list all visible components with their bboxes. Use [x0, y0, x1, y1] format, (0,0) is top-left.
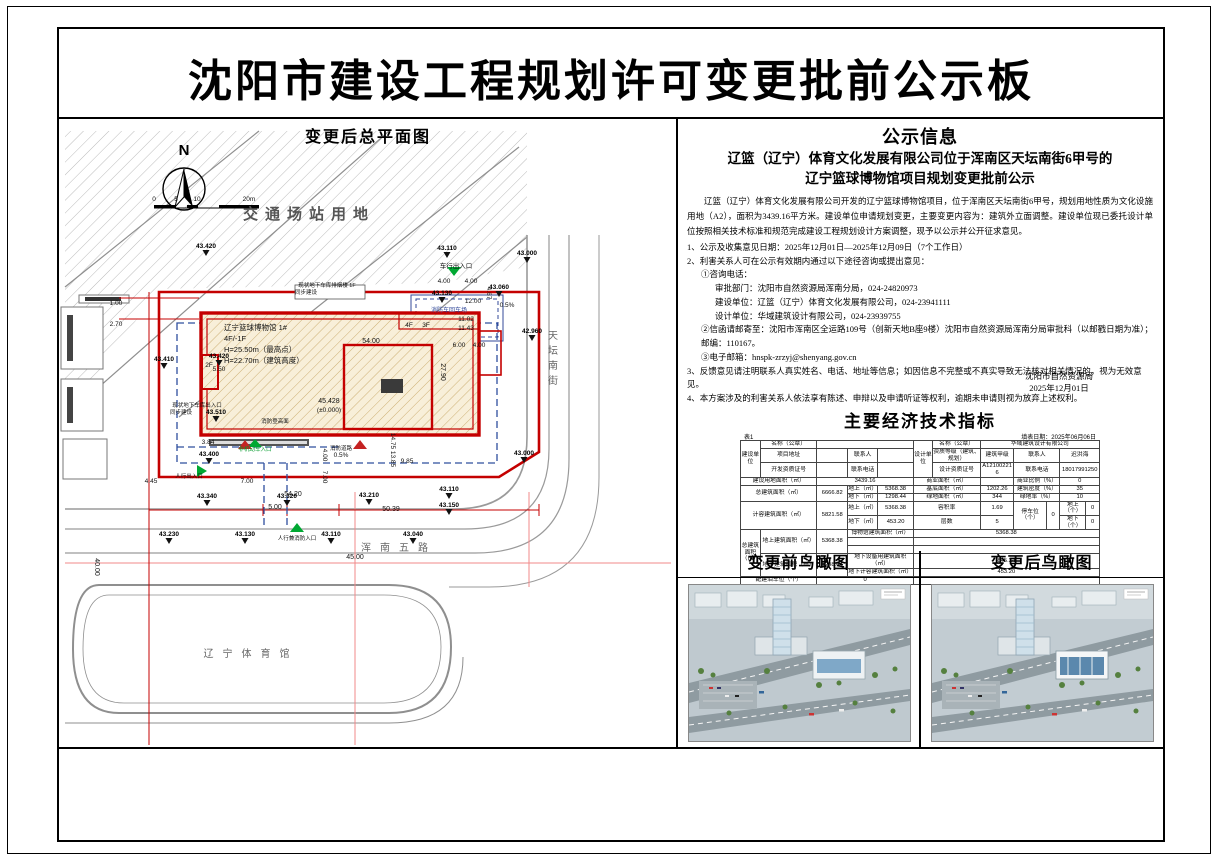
indicator-cell: 建设用地面积（㎡）	[741, 477, 817, 485]
plan-label: 50.39	[382, 506, 400, 513]
plan-label: 辽宁体育馆	[204, 647, 299, 660]
indicator-cell: 容积率	[913, 501, 980, 515]
indicator-cell: 设计单位	[913, 441, 933, 478]
plan-label: 4.67	[485, 287, 492, 300]
indicator-cell: 建筑甲级	[980, 449, 1014, 463]
plan-label: 20m	[243, 196, 256, 203]
plan-label: 13.85	[389, 451, 396, 468]
plan-label: 现状地下车库出入口	[172, 401, 222, 409]
indicator-cell: 华域建筑设计有限公司	[980, 441, 1099, 449]
elevation-marker	[446, 493, 453, 499]
render-museum	[1056, 651, 1108, 679]
plan-label: 车行出入口	[440, 261, 473, 270]
plan-label: 43.210	[359, 492, 379, 499]
elevation-marker	[204, 500, 211, 506]
indicator-cell	[878, 449, 913, 463]
indicator-cell: 迟洪海	[1060, 449, 1100, 463]
plan-label: 43.410	[154, 356, 174, 363]
notice-sign-org: 沈阳市自然资源局	[1025, 370, 1093, 383]
indicator-cell: 联系电话	[1014, 463, 1060, 477]
plan-label: 10	[193, 196, 201, 203]
elevation-marker	[166, 538, 173, 544]
main-frame: 沈阳市建设工程规划许可变更批前公示板 变更后总平面图	[57, 27, 1165, 842]
plan-label: 1.00	[110, 300, 123, 307]
indicator-cell: 5368.38	[878, 485, 913, 493]
indicator-cell: 联系电话	[847, 463, 878, 477]
plan-label: 非机动车入口	[238, 445, 271, 453]
plan-label: 45.00	[346, 554, 364, 561]
plan-label: 11.43	[458, 325, 474, 332]
indicator-cell: 开发资质证号	[760, 463, 817, 477]
render-after-title: 变更后鸟瞰图	[920, 551, 1163, 578]
indicator-cell: 1202.26	[980, 485, 1014, 493]
notice-title: 公示信息	[677, 123, 1163, 149]
indicator-cell: 0	[1046, 501, 1060, 530]
indicator-cell: A121002216	[980, 463, 1014, 477]
plan-label: 43.340	[197, 493, 217, 500]
plan-label: 同步建设	[295, 288, 318, 296]
indicator-cell: 地上（㎡）	[847, 485, 878, 493]
plan-label: 0	[152, 196, 156, 203]
plan-label: 11.02	[458, 316, 474, 323]
notice-board: 沈阳市建设工程规划许可变更批前公示板 变更后总平面图	[0, 0, 1218, 860]
indicator-cell: 5821.58	[817, 501, 848, 530]
elevation-marker	[328, 538, 335, 544]
indicators-corner-left: 表1	[744, 432, 753, 441]
indicator-cell: 绿地率（%）	[1014, 493, 1060, 501]
bottom-divider	[59, 747, 1163, 749]
plan-label: 2F	[205, 362, 213, 369]
indicator-cell: 0	[1086, 515, 1100, 529]
plan-label: 43.000	[514, 450, 534, 457]
plan-label: 浑南五路	[361, 541, 437, 554]
plan-label: 6.00	[453, 342, 466, 349]
indicator-cell: 453.20	[878, 515, 913, 529]
indicator-cell: 基底面积（㎡）	[913, 485, 980, 493]
indicator-cell	[817, 449, 848, 463]
plan-label: 43.230	[159, 531, 179, 538]
indicator-cell: 地上（个）	[1060, 501, 1086, 515]
plan-label: 7.00	[241, 478, 254, 485]
plan-label: 43.320	[277, 493, 297, 500]
indicator-cell: 6666.82	[817, 485, 848, 501]
notice-line: 建设单位：辽篮（辽宁）体育文化发展有限公司，024-23941111	[715, 296, 1153, 310]
indicator-cell: 18017991250	[1060, 463, 1100, 477]
elevation-marker	[161, 363, 168, 369]
notice-line: 审批部门：沈阳市自然资源局浑南分局，024-24820973	[715, 282, 1153, 296]
indicator-cell: 0	[1060, 477, 1100, 485]
indicator-cell: 35	[1060, 485, 1100, 493]
notice-line: 设计单位：华域建筑设计有限公司，024-23939755	[715, 310, 1153, 324]
plan-label: 42.960	[522, 328, 542, 335]
indicator-cell: 5368.38	[913, 530, 1099, 538]
elevation-marker	[496, 291, 503, 297]
indicator-cell: 联系人	[1014, 449, 1060, 463]
indicator-cell: 地下（㎡）	[847, 493, 878, 501]
plan-label: 43.110	[437, 245, 457, 252]
indicator-cell: 资质等级（建筑、规划）	[933, 449, 980, 463]
plan-label: 43.110	[321, 531, 341, 538]
notice-sign-date: 2025年12月01日	[1025, 382, 1093, 395]
elevation-marker	[529, 335, 536, 341]
plan-label: 人行出入口	[175, 472, 203, 480]
elevation-marker	[284, 500, 291, 506]
plan-label: 3F	[422, 322, 430, 329]
notice-line: ①咨询电话：	[701, 268, 1153, 282]
plan-label: 同步建设	[170, 408, 193, 416]
plan-label: 43.130	[235, 531, 255, 538]
elevation-marker	[446, 509, 453, 515]
plan-label: 43.130	[432, 290, 452, 297]
plan-label: 12.00	[465, 298, 482, 305]
indicator-cell: 地下（㎡）	[847, 515, 878, 529]
plan-label: 消防登高面	[261, 417, 289, 425]
render-before-panel: 变更前鸟瞰图	[677, 551, 920, 747]
indicator-cell: 0	[1086, 501, 1100, 515]
page-title: 沈阳市建设工程规划许可变更批前公示板	[59, 45, 1163, 109]
indicators-title: 主要经济技术指标	[677, 407, 1163, 432]
plan-label: 4F	[405, 322, 413, 329]
indicator-cell	[847, 538, 913, 546]
indicator-cell: 层数	[913, 515, 980, 529]
indicator-cell: 博物馆建筑面积（㎡）	[847, 530, 913, 538]
notice-subtitle-line1: 辽篮（辽宁）体育文化发展有限公司位于浑南区天坛南街6甲号的	[677, 149, 1163, 169]
indicator-cell: 联系人	[847, 449, 878, 463]
render-after-panel: 变更后鸟瞰图	[920, 551, 1163, 747]
plan-label: 交通场站用地	[243, 205, 375, 223]
indicator-cell: 3439.16	[817, 477, 913, 485]
indicator-cell	[817, 463, 848, 477]
plan-label: 40.00	[93, 558, 100, 576]
plan-label: 43.420	[196, 243, 216, 250]
notice-paragraph: 辽篮（辽宁）体育文化发展有限公司开发的辽宁篮球博物馆项目，位于浑南区天坛南街6甲…	[687, 194, 1153, 239]
plan-label: 5.00	[268, 504, 282, 511]
render-after-image	[931, 584, 1154, 742]
indicator-cell: 商业比例（%）	[1014, 477, 1060, 485]
notice-line: ②信函请邮寄至：沈阳市浑南区全运路109号（创新天地B座9楼）沈阳市自然资源局浑…	[701, 323, 1153, 351]
render-museum	[813, 651, 865, 679]
plan-label: 27.90	[439, 363, 446, 381]
indicator-cell: 地下（个）	[1060, 515, 1086, 529]
plan-label: 4.00	[465, 278, 478, 285]
plan-label: 0.5%	[500, 302, 515, 309]
indicator-cell: 10	[1060, 493, 1100, 501]
renders-section: 变更前鸟瞰图	[677, 551, 1163, 747]
indicator-cell: 建设单位	[741, 441, 761, 478]
notice-line: 2、利害关系人可在公示有效期内通过以下途径咨询或提出意见：	[687, 255, 1153, 269]
plan-label: 9.85	[401, 458, 414, 465]
plan-label: 43.000	[517, 250, 537, 257]
plan-label: 45.428	[318, 398, 340, 405]
plan-label: 43.040	[403, 531, 423, 538]
plan-label: H=22.70m（建筑高度）	[224, 355, 304, 365]
indicator-cell: 1298.44	[878, 493, 913, 501]
indicator-cell: 计容建筑面积（㎡）	[741, 501, 817, 530]
plan-label: 14.75	[389, 433, 396, 450]
indicator-cell: 设计资质证号	[933, 463, 980, 477]
elevation-marker	[439, 297, 446, 303]
plan-label: 43.110	[439, 486, 459, 493]
site-plan-title: 变更后总平面图	[59, 123, 677, 147]
render-before-title: 变更前鸟瞰图	[677, 551, 920, 578]
indicator-cell: 项目地址	[760, 449, 817, 463]
notice-line: ③电子邮箱：hnspk-zrzyj@shenyang.gov.cn	[701, 351, 1153, 365]
plan-label: 43.150	[439, 502, 459, 509]
render-before-image	[688, 584, 911, 742]
notice-panel: 公示信息 辽篮（辽宁）体育文化发展有限公司位于浑南区天坛南街6甲号的 辽宁篮球博…	[677, 117, 1163, 403]
plan-label: 0.5%	[334, 452, 349, 459]
indicator-cell: 5	[980, 515, 1014, 529]
indicator-cell: 建筑密度（%）	[1014, 485, 1060, 493]
plan-label: 辽宁篮球博物馆 1#	[224, 322, 288, 332]
indicator-cell: 名称（公章）	[933, 441, 980, 449]
plan-label: 54.00	[362, 338, 380, 345]
elevation-marker	[366, 499, 373, 505]
indicators-corner-right: 填表日期：2025年06月06日	[1021, 432, 1096, 441]
indicator-cell: 总建筑面积（㎡）	[741, 485, 817, 501]
plan-label: 4.00	[473, 342, 486, 349]
indicator-cell	[980, 477, 1014, 485]
plan-label: 5.50	[213, 366, 226, 373]
indicator-cell: 停车位（个）	[1014, 501, 1046, 530]
reference-lines	[65, 492, 671, 745]
indicator-cell: 地上（㎡）	[847, 501, 878, 515]
elevation-marker	[242, 538, 249, 544]
plan-label: (±0.000)	[317, 407, 341, 414]
notice-line: 1、公示及收集意见日期：2025年12月01日—2025年12月09日（7个工作…	[687, 241, 1153, 255]
site-plan-drawing: N051020m交通场站用地43.42043.11043.000车行出入口4.0…	[59, 117, 677, 747]
indicator-cell: 344	[980, 493, 1014, 501]
plan-label: 4.00	[321, 449, 328, 462]
plan-label: 消防道路	[330, 444, 353, 452]
plan-label: 人行兼消防入口	[278, 534, 317, 542]
plan-label: 43.510	[206, 409, 226, 416]
indicators-panel: 主要经济技术指标 表1 填表日期：2025年06月06日 建设单位名称（公章）设…	[677, 405, 1163, 549]
indicators-corners: 表1 填表日期：2025年06月06日	[740, 432, 1100, 440]
plan-label: 3.84	[202, 439, 215, 446]
plan-label: 4F/-1F	[224, 334, 247, 343]
indicator-cell	[913, 538, 1099, 546]
plan-label: 7.00	[321, 471, 328, 484]
plan-label: 5	[174, 196, 178, 203]
plan-label: 4.45	[145, 478, 158, 485]
plan-label: H=25.50m（最高点）	[224, 344, 296, 354]
indicator-cell: 商业面积（㎡）	[913, 477, 980, 485]
notice-signature: 沈阳市自然资源局 2025年12月01日	[1025, 370, 1093, 396]
plan-label: 43.400	[199, 451, 219, 458]
plan-label: 消防车回车场	[431, 306, 467, 314]
indicator-cell: 绿地面积（㎡）	[913, 493, 980, 501]
plan-label: 现状地下车库排烟楼 1F	[298, 281, 356, 289]
site-plan-panel: 变更后总平面图	[59, 117, 677, 747]
indicator-cell: 名称（公章）	[760, 441, 817, 449]
indicator-cell: 1.69	[980, 501, 1014, 515]
plan-label: 4.00	[438, 278, 451, 285]
indicator-cell	[878, 463, 913, 477]
plan-label: 2.70	[110, 321, 123, 328]
indicator-cell: 5368.38	[878, 501, 913, 515]
notice-subtitle-line2: 辽宁篮球博物馆项目规划变更批前公示	[677, 169, 1163, 189]
indicator-cell	[817, 441, 913, 449]
